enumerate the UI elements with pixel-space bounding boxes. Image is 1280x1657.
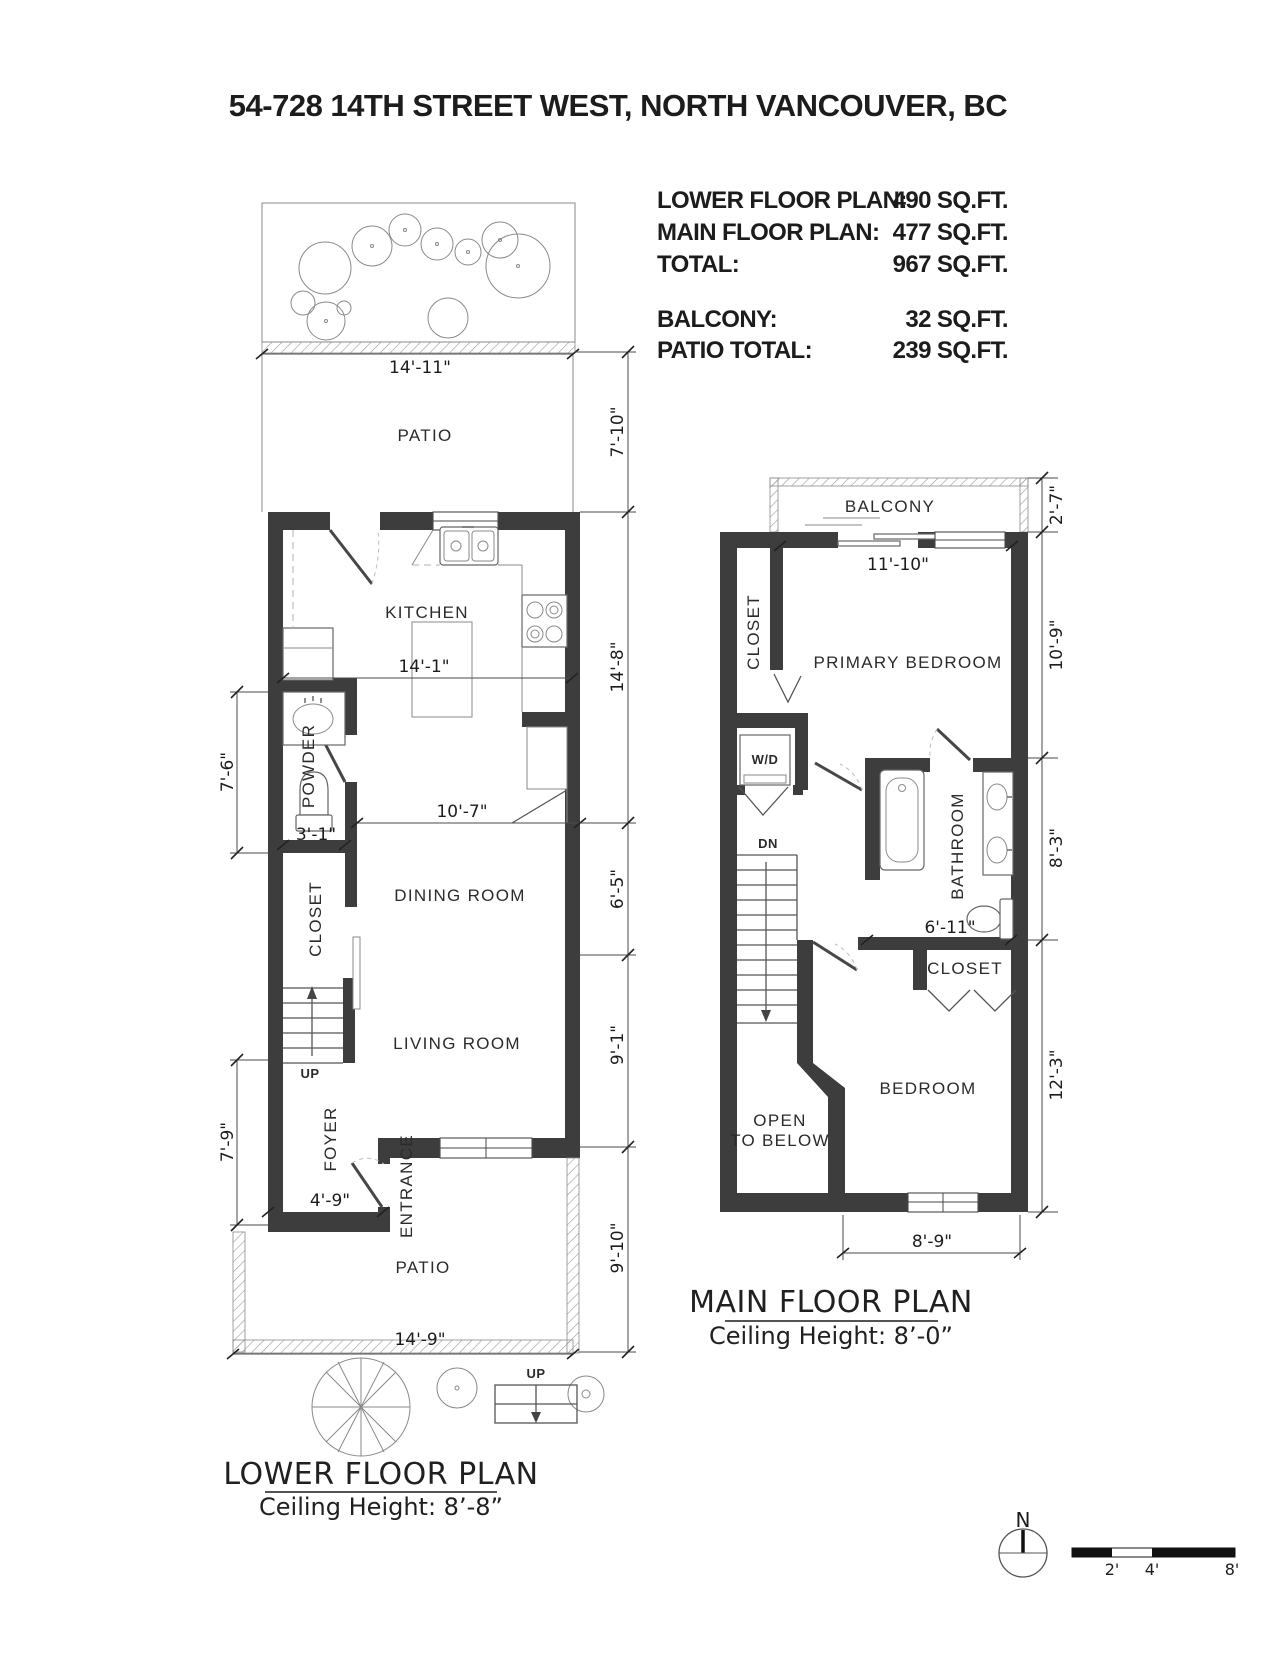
bathroom-fixtures <box>880 770 1013 939</box>
wd-bifold-door <box>739 787 788 815</box>
room-label-patio-top: PATIO <box>398 426 453 445</box>
dim-living-depth: 9'-1" <box>608 1025 628 1065</box>
room-label-bedroom: BEDROOM <box>880 1079 977 1098</box>
floor-plan-canvas: 54-728 14TH STREET WEST, NORTH VANCOUVER… <box>0 0 1280 1657</box>
scale-label-4ft: 4' <box>1145 1560 1160 1579</box>
dim-powder-depth: 7'-6" <box>218 686 268 859</box>
area-row-label: MAIN FLOOR PLAN: <box>657 219 879 246</box>
exterior-steps: UP <box>495 1366 577 1423</box>
pantry <box>527 727 567 789</box>
main-floor-caption-title: MAIN FLOOR PLAN <box>689 1285 973 1320</box>
balcony: BALCONY <box>770 478 1028 532</box>
dim-text: 4'-9" <box>310 1191 350 1211</box>
dim-patio-top-depth: 7'-10" <box>608 406 628 457</box>
compass: N <box>999 1508 1047 1577</box>
dim-primary-depth: 10'-9" <box>1047 619 1067 670</box>
toilet-tank <box>1000 899 1013 939</box>
primary-closet-door <box>774 674 801 702</box>
dim-bedroom-width: 8'-9" <box>837 1215 1026 1260</box>
exterior-steps-up-label: UP <box>526 1366 545 1381</box>
room-label-living: LIVING ROOM <box>393 1034 521 1053</box>
scale-bar: 2' 4' 8' <box>1072 1548 1239 1579</box>
shrub <box>568 1376 604 1412</box>
main-floor-ceiling-height: Ceiling Height: 8’-0” <box>709 1322 953 1350</box>
area-summary-table: LOWER FLOOR PLAN: 490 SQ.FT. MAIN FLOOR … <box>657 187 1008 364</box>
room-label-balcony: BALCONY <box>845 497 935 516</box>
area-row-value: 239 SQ.FT. <box>893 337 1008 364</box>
steps-down-arrow <box>531 1412 541 1423</box>
room-label-closet-primary: CLOSET <box>744 594 763 670</box>
room-label-powder: POWDER <box>299 724 318 808</box>
dim-bathroom-depth: 8'-3" <box>1047 828 1067 868</box>
dim-text: 7'-9" <box>218 1122 238 1162</box>
dim-patio-bottom-depth: 9'-10" <box>608 1222 628 1273</box>
closet-bifold-door <box>974 990 1016 1011</box>
entrance-door-leaf <box>352 1163 382 1207</box>
dim-dining-width: 10'-7" <box>351 802 586 828</box>
area-row-value-total: 967 SQ.FT. <box>893 251 1008 278</box>
scale-label-2ft: 2' <box>1105 1560 1120 1579</box>
room-label-dining: DINING ROOM <box>394 886 525 905</box>
balcony-slider-panel <box>874 534 936 539</box>
room-label-closet-bedroom: CLOSET <box>927 959 1003 978</box>
room-label-bathroom: BATHROOM <box>948 792 967 899</box>
area-row-value: 477 SQ.FT. <box>893 219 1008 246</box>
stairs-down-arrow <box>761 1010 771 1022</box>
main-floor-plan: BALCONY <box>689 472 1067 1350</box>
room-label-primary-bedroom: PRIMARY BEDROOM <box>814 653 1003 672</box>
closet-bifold-door <box>928 990 970 1011</box>
dim-text: 14'-9" <box>394 1330 445 1350</box>
fridge <box>283 628 333 680</box>
room-label-open-below-1: OPEN <box>753 1111 806 1130</box>
shrub <box>437 1368 477 1408</box>
dim-text: 8'-9" <box>912 1232 952 1252</box>
room-label-patio-bottom: PATIO <box>396 1258 451 1277</box>
dim-text: 7'-6" <box>218 752 238 792</box>
dim-text: 11'-10" <box>867 555 929 575</box>
dim-dining-depth: 6'-5" <box>608 869 628 909</box>
dim-bedroom-depth: 12'-3" <box>1047 1049 1067 1100</box>
balcony-slider-panel <box>838 541 900 546</box>
main-right-dims: 2'-7" 10'-9" 8'-3" 12'-3" <box>1028 472 1067 1218</box>
dim-kitchen-depth: 14'-8" <box>608 641 628 692</box>
room-label-foyer: FOYER <box>321 1106 340 1171</box>
lower-floor-caption-title: LOWER FLOOR PLAN <box>223 1457 538 1492</box>
main-floor-caption: MAIN FLOOR PLAN Ceiling Height: 8’-0” <box>689 1285 973 1350</box>
primary-bath-door-leaf <box>937 729 970 760</box>
bathroom-vanity <box>983 772 1013 875</box>
retaining-wall-hatch <box>262 342 575 353</box>
room-label-entrance: ENTRANCE <box>397 1134 416 1238</box>
dim-text: 14'-1" <box>398 657 449 677</box>
kitchen-door-leaf <box>330 530 372 584</box>
room-label-kitchen: KITCHEN <box>385 603 469 622</box>
stairs-up-label: UP <box>300 1066 319 1081</box>
lower-floor-caption: LOWER FLOOR PLAN Ceiling Height: 8’-8” <box>223 1457 538 1521</box>
bath-hall-door-leaf <box>815 763 862 790</box>
landscape-trees <box>262 203 575 353</box>
dim-text: 14'-11" <box>389 358 451 378</box>
area-row-label: PATIO TOTAL: <box>657 337 812 364</box>
area-row-value: 490 SQ.FT. <box>893 187 1008 214</box>
scale-label-8ft: 8' <box>1225 1560 1240 1579</box>
lower-right-dims: 7'-10" 14'-8" 6'-5" 9'-1" 9'-10" <box>575 346 636 1358</box>
bedroom-door-leaf <box>813 942 857 970</box>
dim-text: 6'-11" <box>924 918 975 938</box>
stair-railing <box>353 937 360 1009</box>
washer-dryer: W/D <box>740 735 790 785</box>
lower-floor-plan: PATIO 14'-11" <box>218 203 636 1521</box>
area-row-label: BALCONY: <box>657 306 777 333</box>
stairs-down-label: DN <box>758 836 778 851</box>
room-label-open-below-2: TO BELOW <box>730 1131 830 1150</box>
dim-text: 3'-1" <box>296 825 336 845</box>
page-title: 54-728 14TH STREET WEST, NORTH VANCOUVER… <box>229 88 1008 123</box>
lower-floor-ceiling-height: Ceiling Height: 8’-8” <box>259 1493 503 1521</box>
area-row-value: 32 SQ.FT. <box>905 306 1008 333</box>
dim-text: 10'-7" <box>436 802 487 822</box>
main-stairs: DN <box>737 836 797 1023</box>
area-row-label-total: TOTAL: <box>657 251 739 278</box>
room-label-closet: CLOSET <box>306 881 325 957</box>
main-windows-doors-top <box>838 532 1005 1212</box>
dim-balcony-depth: 2'-7" <box>1047 485 1067 525</box>
bottom-landscaping: UP <box>312 1358 604 1456</box>
wd-label: W/D <box>752 752 779 767</box>
area-row-label: LOWER FLOOR PLAN: <box>657 187 907 214</box>
floor-plan-page: 54-728 14TH STREET WEST, NORTH VANCOUVER… <box>0 0 1280 1657</box>
dim-foyer-depth: 7'-9" <box>218 1054 268 1231</box>
